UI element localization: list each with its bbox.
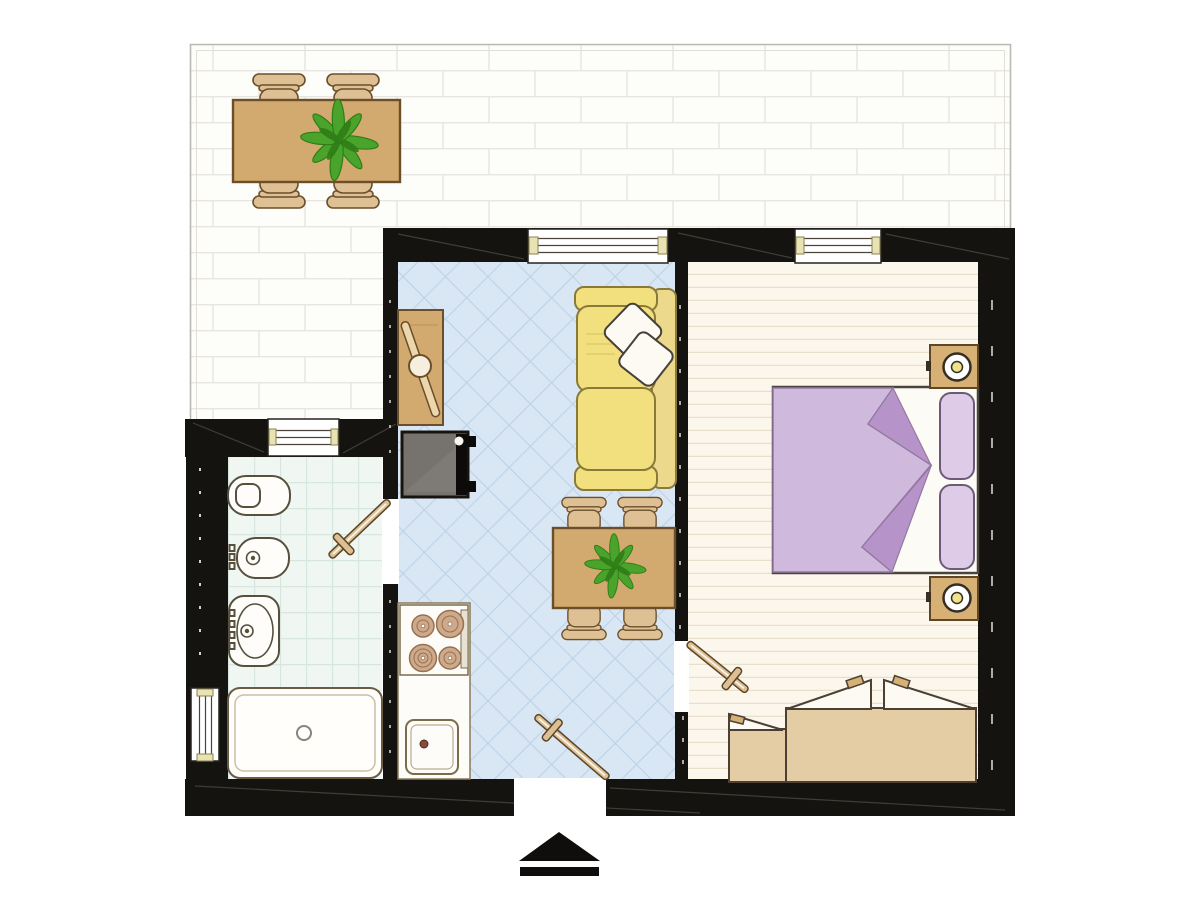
bathtub-drain bbox=[297, 726, 311, 740]
floor-plan-drawing bbox=[0, 0, 1200, 900]
bathtub bbox=[228, 688, 382, 778]
dining-chair bbox=[562, 605, 606, 640]
console-table bbox=[398, 310, 443, 425]
cooktop bbox=[400, 605, 468, 675]
toilet bbox=[228, 476, 290, 515]
burner bbox=[437, 611, 464, 638]
kitchen-sink bbox=[406, 720, 458, 774]
window-living-room bbox=[528, 229, 668, 263]
wall-right bbox=[978, 228, 1015, 816]
window-bathroom-left bbox=[191, 688, 219, 761]
north-arrow bbox=[519, 832, 600, 876]
burner bbox=[439, 647, 461, 669]
entrance-opening bbox=[514, 778, 606, 818]
nightstand bbox=[926, 345, 978, 388]
nightstand bbox=[926, 577, 978, 620]
sofa-cushion bbox=[577, 388, 655, 470]
window-bedroom bbox=[795, 229, 881, 263]
floor-plan-canvas bbox=[0, 0, 1200, 900]
bed-pillow bbox=[940, 393, 974, 479]
arrow-triangle bbox=[519, 832, 600, 861]
wall-top bbox=[383, 228, 1015, 262]
bedroom-door-opening bbox=[674, 641, 689, 712]
sofa bbox=[575, 287, 676, 490]
washbasin bbox=[229, 596, 279, 666]
kitchen bbox=[398, 603, 470, 779]
burner bbox=[412, 615, 434, 637]
double-bed bbox=[773, 387, 978, 573]
dining-chair bbox=[618, 605, 662, 640]
tv-unit bbox=[402, 432, 476, 497]
burner bbox=[410, 645, 437, 672]
bed-pillow bbox=[940, 485, 974, 569]
bathroom-door-opening bbox=[382, 499, 399, 584]
window-bathroom-top bbox=[268, 419, 339, 456]
arrow-bar bbox=[520, 867, 599, 876]
